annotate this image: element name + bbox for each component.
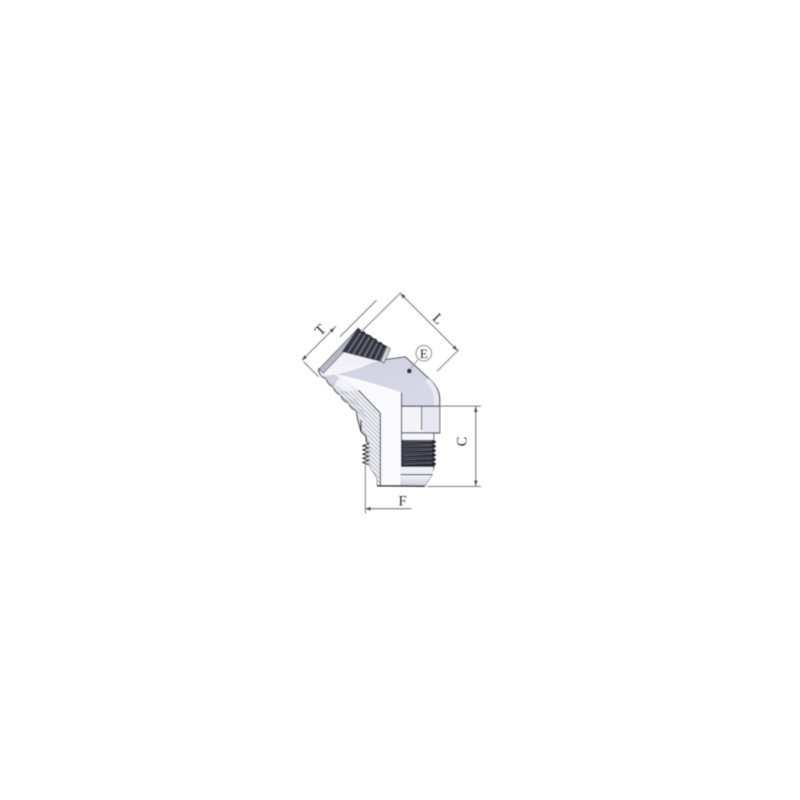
svg-text:C: C xyxy=(455,437,471,447)
svg-text:E: E xyxy=(420,346,428,361)
svg-text:F: F xyxy=(398,494,406,510)
